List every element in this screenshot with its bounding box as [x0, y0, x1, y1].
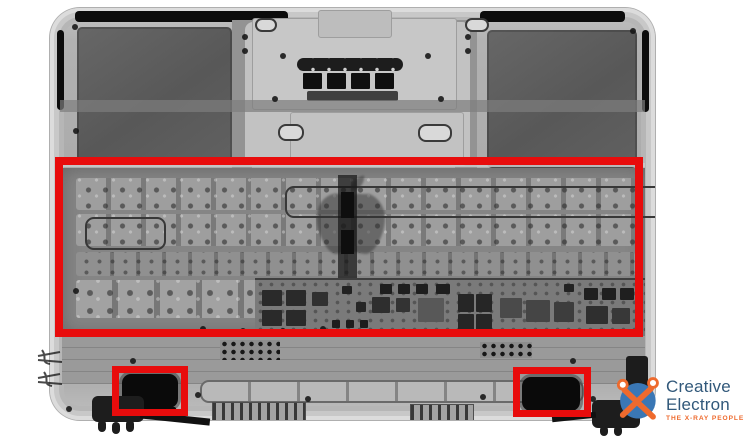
screw: [242, 34, 248, 40]
board-connector-bar: [297, 58, 403, 71]
annotation-box-left-speaker: [112, 366, 188, 416]
screw: [73, 128, 79, 134]
screw: [66, 406, 72, 412]
connector-block-right: [480, 342, 532, 358]
hinge-left-stub: [126, 420, 134, 432]
logo-line2: Electron: [666, 396, 744, 413]
bottom-board-left: [212, 402, 306, 420]
creative-electron-logo: Creative Electron THE X-RAY PEOPLE: [613, 375, 744, 423]
hinge-right-stub: [600, 426, 608, 436]
screw: [272, 96, 278, 102]
hinge-right-stub: [614, 426, 622, 436]
screw: [305, 396, 311, 402]
hinge-strap: [60, 100, 645, 112]
logo-wordmark: Creative Electron THE X-RAY PEOPLE: [666, 375, 744, 423]
antenna-strip-left-edge: [57, 30, 64, 110]
hinge-left-stub: [112, 422, 120, 434]
clutch-oval-right: [465, 18, 489, 32]
xray-screenshot: Creative Electron THE X-RAY PEOPLE: [0, 0, 750, 437]
bottom-board-right: [410, 404, 474, 420]
annotation-box-keyboard: [55, 157, 643, 337]
logo-tagline: THE X-RAY PEOPLE: [666, 416, 744, 423]
standoff-oval-right: [418, 124, 452, 142]
screw: [438, 96, 444, 102]
antenna-strip-top-right: [480, 11, 625, 22]
clutch-oval-left: [255, 18, 277, 32]
annotation-box-right-speaker: [513, 367, 591, 417]
screw: [465, 48, 471, 54]
battery-cell-left: [77, 27, 232, 163]
scissors-x-icon: [613, 375, 661, 423]
hinge-left-stub: [98, 420, 106, 432]
battery-cell-right: [487, 30, 637, 168]
screw: [280, 53, 286, 59]
screw: [195, 392, 201, 398]
screw: [72, 24, 78, 30]
connector-block-left: [220, 340, 280, 360]
screw: [630, 28, 636, 34]
screw: [425, 53, 431, 59]
screw: [465, 34, 471, 40]
screw: [480, 394, 486, 400]
screw: [570, 358, 576, 364]
standoff-oval-left: [278, 124, 304, 141]
screw: [130, 358, 136, 364]
screw: [242, 48, 248, 54]
logic-board-tab: [318, 10, 392, 38]
logo-line1: Creative: [666, 378, 744, 395]
xray-scribble-marks: [34, 348, 68, 400]
